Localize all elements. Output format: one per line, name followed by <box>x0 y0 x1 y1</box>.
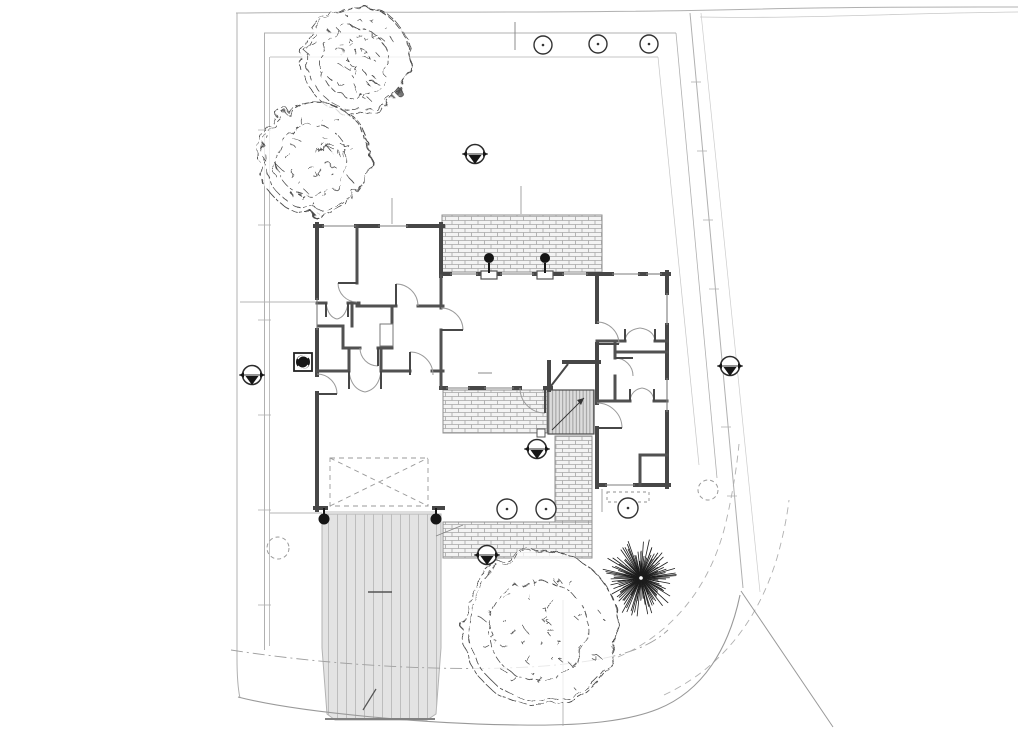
right-of-way-dashed-inner <box>618 444 739 657</box>
door-swing <box>396 284 418 306</box>
tree-canopy <box>258 102 370 214</box>
door-swing <box>441 308 463 330</box>
post <box>484 253 494 263</box>
shrub-center <box>597 43 600 46</box>
road-edge-southeast <box>741 591 833 727</box>
post <box>431 514 442 525</box>
site-plan-page <box>0 0 1024 739</box>
door-swing <box>360 348 378 366</box>
tree-deciduous <box>258 102 371 214</box>
shrub-center <box>545 508 548 511</box>
property-line-east <box>690 13 743 588</box>
door-swing <box>317 374 337 394</box>
survey-marker <box>717 357 743 377</box>
tree-canopy <box>462 550 618 706</box>
door-swing <box>326 303 337 319</box>
road-edge-north-2 <box>700 12 1018 17</box>
deck-post <box>537 429 545 437</box>
road-edge-east <box>701 13 760 592</box>
door-swing <box>640 328 655 341</box>
shrub-center <box>506 508 509 511</box>
door-swing <box>337 303 348 319</box>
shrub-center <box>542 44 545 47</box>
shrub-center <box>648 43 651 46</box>
shrub-dashed <box>698 480 718 500</box>
fence-line-east <box>676 33 717 478</box>
door-swing <box>630 388 642 401</box>
shrub-dashed <box>267 537 289 559</box>
door-swing <box>410 352 433 375</box>
survey-marker <box>239 366 265 386</box>
property-line-west-outer <box>237 13 240 698</box>
door-swing <box>365 371 381 392</box>
fence-line-east-2 <box>658 57 699 465</box>
survey-marker <box>462 145 488 165</box>
tree-canopy <box>302 6 410 114</box>
shrub-center <box>627 507 630 510</box>
walkway-pavers-south <box>443 522 592 558</box>
walkway-pavers-mid <box>443 390 547 433</box>
door-swing <box>338 283 357 302</box>
tree-deciduous <box>302 6 411 114</box>
site-plan-drawing <box>0 0 1024 739</box>
patio-pavers-north <box>442 215 602 272</box>
door-swing <box>625 328 640 341</box>
tree-deciduous <box>462 550 618 706</box>
driveway-hatch <box>322 514 441 720</box>
post <box>319 514 330 525</box>
right-of-way-dashed-outer <box>664 500 789 695</box>
survey-marker <box>524 440 550 460</box>
door-swing <box>615 358 633 376</box>
walkway-pavers-east <box>555 436 592 522</box>
door-swing <box>597 403 622 428</box>
kitchen-fixture <box>380 324 393 346</box>
post <box>540 253 550 263</box>
door-leaf <box>551 364 568 386</box>
driveway <box>322 514 441 720</box>
door-swing <box>642 388 654 401</box>
door-swing <box>349 371 365 392</box>
